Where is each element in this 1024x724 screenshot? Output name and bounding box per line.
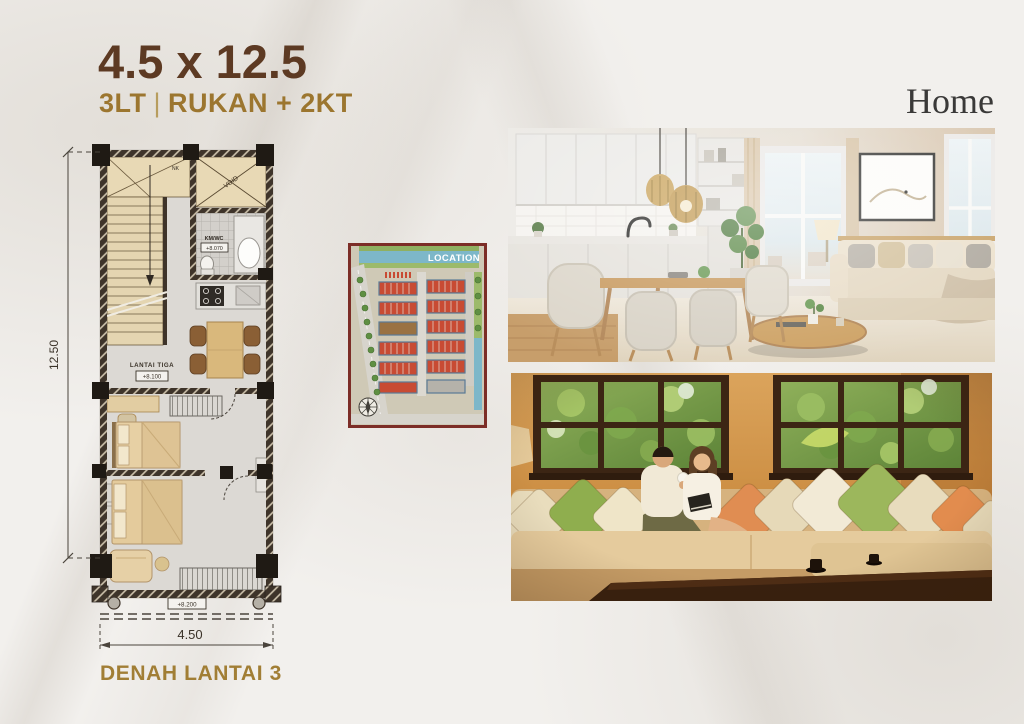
desk <box>107 396 159 412</box>
bench-sofa <box>110 550 152 582</box>
bathtub <box>238 238 260 268</box>
wardrobe <box>170 396 222 416</box>
photo-kitchen-living <box>508 128 995 362</box>
map-location-label: LOCATION <box>428 253 480 264</box>
brochure-page: { "header": { "title": "4.5 x 12.5", "su… <box>0 0 1024 724</box>
kitchen-counter <box>196 283 266 309</box>
dimension-width: 4.50 <box>100 624 273 652</box>
page-title: 4.5 x 12.5 <box>98 34 307 89</box>
subtitle-separator: | <box>147 88 169 118</box>
compass-icon <box>359 398 377 416</box>
bath-label: KM/WC <box>205 236 224 242</box>
floorplan-drawing: NK VOID KM/WC +8.070 <box>30 140 310 665</box>
dim-height-label: 12.50 <box>47 340 61 370</box>
louver-vent <box>180 568 262 590</box>
floorplan-caption: DENAH LANTAI 3 <box>100 662 282 686</box>
dim-width-label: 4.50 <box>177 627 202 642</box>
page-subtitle: 3LT|RUKAN + 2KT <box>99 88 353 119</box>
bathroom: KM/WC +8.070 <box>196 213 266 275</box>
dimension-height: 12.50 <box>47 147 100 563</box>
location-map: LOCATION <box>348 243 487 428</box>
void-area: VOID <box>196 157 266 207</box>
base-level-label: +8.200 <box>177 601 197 608</box>
bath-level-label: +8.070 <box>206 246 223 252</box>
subtitle-right: RUKAN + 2KT <box>168 88 353 118</box>
stair-label: NK <box>172 166 180 172</box>
location-map-drawing: LOCATION <box>351 246 484 425</box>
photo-couple-sofa <box>511 373 992 601</box>
floor-name-label: LANTAI TIGA <box>130 362 174 369</box>
subtitle-left: 3LT <box>99 88 147 118</box>
floor-level-label: +8.100 <box>143 375 162 381</box>
brand-logo: Home <box>906 80 994 122</box>
